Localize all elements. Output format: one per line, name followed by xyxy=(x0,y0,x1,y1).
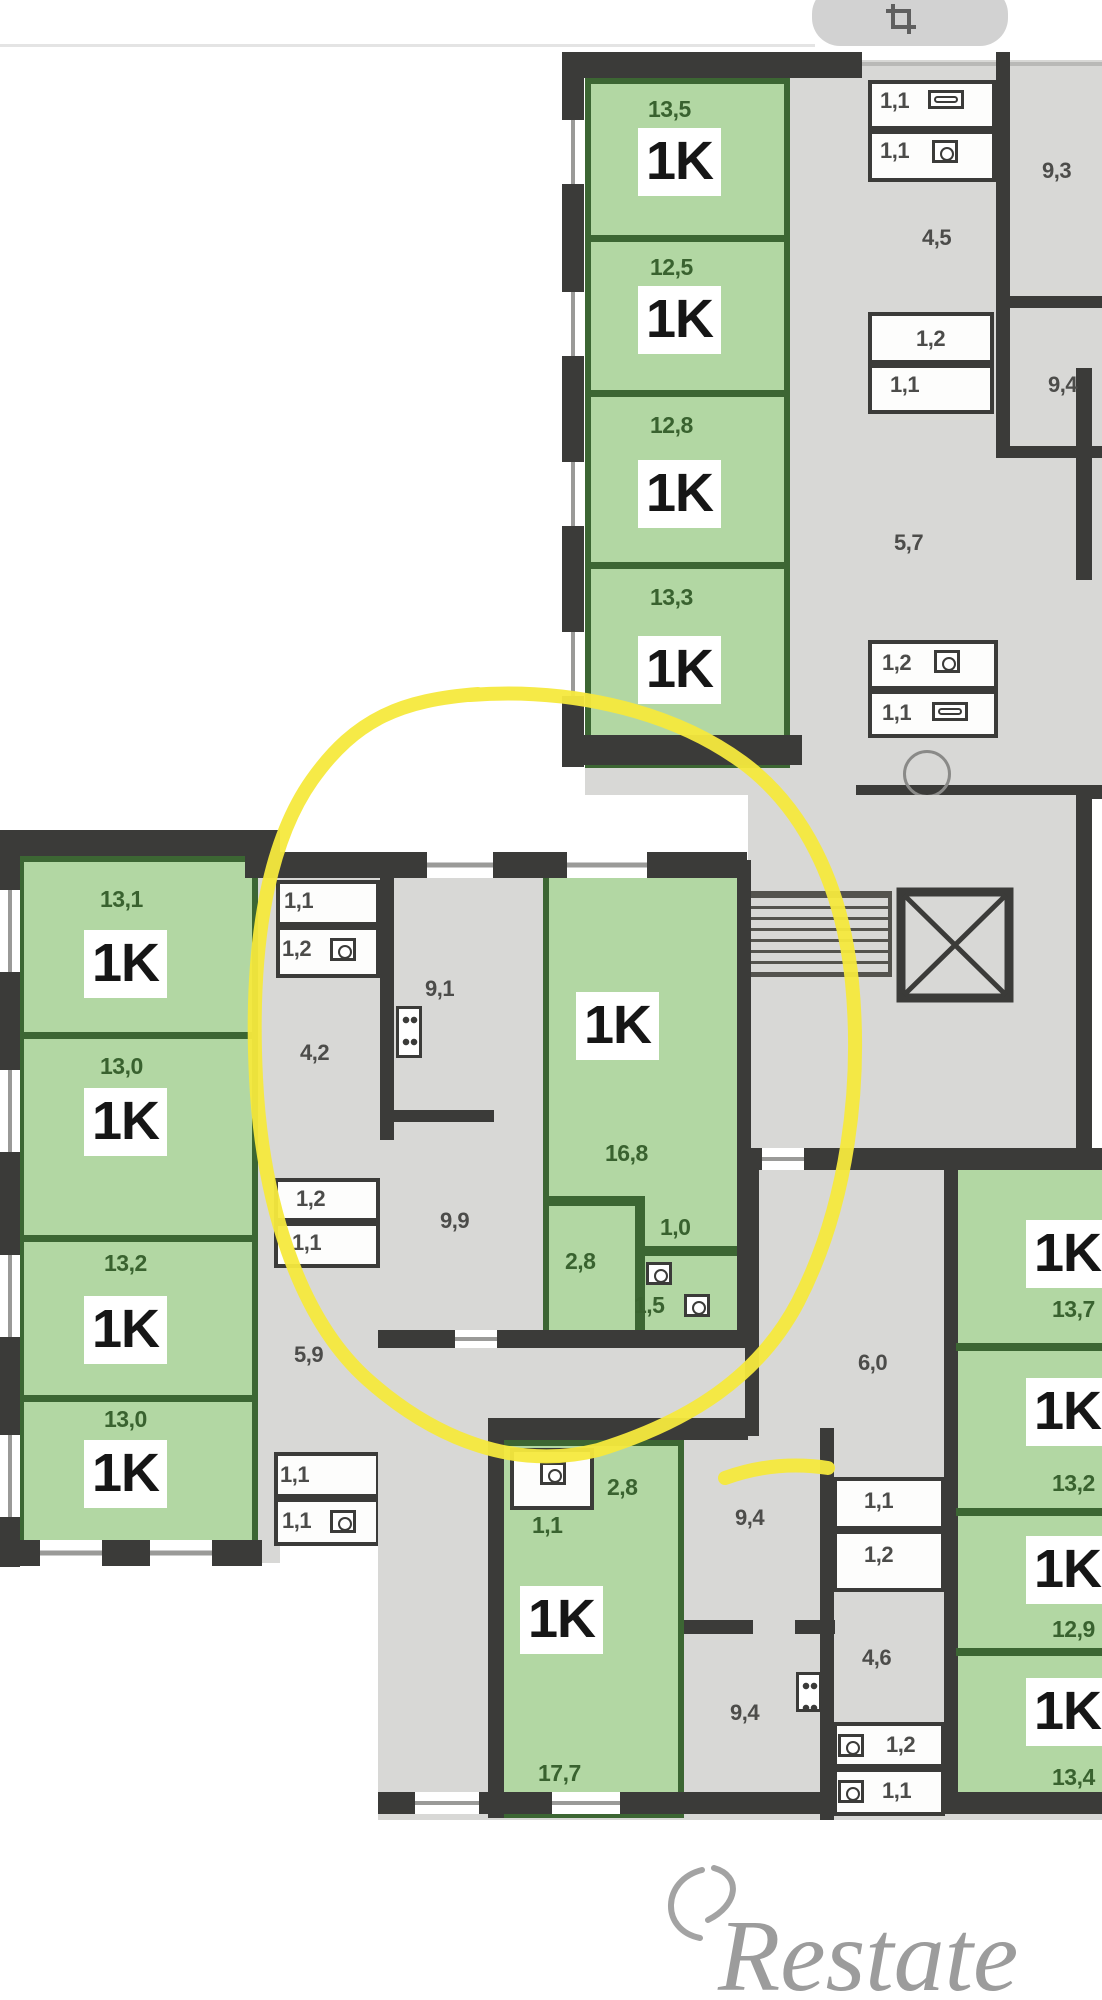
wall xyxy=(21,1032,255,1039)
window xyxy=(0,1255,20,1337)
room-area-label: 9,3 xyxy=(1042,158,1071,184)
apartment-type-badge: 1K xyxy=(520,1586,603,1654)
wall xyxy=(745,1148,759,1436)
washer-icon xyxy=(932,140,958,163)
stove-icon xyxy=(796,1672,822,1712)
wall xyxy=(488,1418,748,1440)
room-area-label: 9,1 xyxy=(425,976,454,1002)
elevator-icon xyxy=(896,887,1016,1007)
apartment-type-badge: 1K xyxy=(638,636,721,704)
room-area-label: 1,1 xyxy=(282,1508,311,1534)
wall xyxy=(0,830,280,856)
wall xyxy=(380,858,394,1140)
wall xyxy=(378,1792,1102,1814)
window xyxy=(567,852,647,878)
watermark-text: Restate xyxy=(717,1900,1018,2000)
bathroom-box xyxy=(274,1222,380,1268)
wall xyxy=(645,1246,741,1256)
washer-icon xyxy=(330,1510,356,1533)
wall xyxy=(378,1330,748,1348)
restate-watermark: Restate xyxy=(600,1850,1102,2000)
apartment-type-badge: 1K xyxy=(84,930,167,998)
apartment-area: 13,1 xyxy=(100,886,143,913)
room-area-label: 9,9 xyxy=(440,1208,469,1234)
apartment-type-badge: 1K xyxy=(1026,1678,1102,1746)
window xyxy=(562,462,584,526)
room-area-label: 2,8 xyxy=(607,1474,637,1501)
apartment-area: 12,8 xyxy=(650,412,693,439)
crop-icon xyxy=(884,2,918,38)
apartment-type-badge: 1K xyxy=(84,1296,167,1364)
wall xyxy=(588,390,787,397)
door-gap xyxy=(455,1330,497,1348)
room-area-label: 1,2 xyxy=(296,1186,325,1212)
room-area-label: 1,0 xyxy=(660,1214,690,1241)
room-area-label: 4,2 xyxy=(300,1040,329,1066)
apartment-area: 16,8 xyxy=(605,1140,648,1167)
wall xyxy=(588,562,787,569)
central-kitchen-corridor xyxy=(388,868,548,1346)
washer-icon xyxy=(540,1462,566,1485)
room-area-label: 2,8 xyxy=(565,1248,595,1275)
wall xyxy=(996,52,1010,310)
window xyxy=(0,1435,20,1517)
wall xyxy=(245,852,747,878)
apartment-area: 12,9 xyxy=(1052,1616,1095,1643)
apartment-type-badge: 1K xyxy=(1026,1378,1102,1446)
window xyxy=(415,1792,479,1814)
wall xyxy=(795,1620,835,1634)
apartment-type-badge: 1K xyxy=(638,460,721,528)
washer-icon xyxy=(838,1734,864,1757)
apartment-area: 13,0 xyxy=(104,1406,147,1433)
window xyxy=(0,1070,20,1152)
apartment-type-badge: 1K xyxy=(638,128,721,196)
room-area-label: 4,5 xyxy=(922,225,951,251)
room-area-label: 1,1 xyxy=(890,372,919,398)
apartment-area: 13,3 xyxy=(650,584,693,611)
apartment-type-badge: 1K xyxy=(84,1440,167,1508)
room-area-label: 1,1 xyxy=(880,88,909,114)
top-divider xyxy=(0,44,815,47)
room-area-label: 5,9 xyxy=(294,1342,323,1368)
wall xyxy=(562,52,862,78)
window xyxy=(562,292,584,356)
wall xyxy=(588,235,787,242)
wall xyxy=(1076,368,1092,580)
room-area-label: 6,0 xyxy=(858,1350,887,1376)
apartment-area: 12,5 xyxy=(650,254,693,281)
door-gap xyxy=(762,1148,804,1170)
washer-icon xyxy=(838,1780,864,1803)
washer-icon xyxy=(330,938,356,961)
apartment-type-badge: 1K xyxy=(84,1088,167,1156)
apartment-area: 13,4 xyxy=(1052,1764,1095,1791)
apartment-type-badge: 1K xyxy=(1026,1220,1102,1288)
apartment-area: 13,2 xyxy=(1052,1470,1095,1497)
column-circle-icon xyxy=(903,750,951,798)
room-area-label: 1,1 xyxy=(864,1488,893,1514)
room-area-label: 9,4 xyxy=(730,1700,759,1726)
stove-icon xyxy=(396,1006,422,1058)
room-area-label: 9,4 xyxy=(1048,372,1077,398)
window xyxy=(150,1540,212,1566)
room-area-label: 9,4 xyxy=(735,1505,764,1531)
wall xyxy=(996,310,1010,458)
room-area-label: 1,1 xyxy=(292,1230,321,1256)
wall xyxy=(488,1418,504,1818)
wall xyxy=(1076,795,1092,1155)
apartment-area: 17,7 xyxy=(538,1760,581,1787)
wall xyxy=(956,1343,1102,1351)
room-area-label: 1,1 xyxy=(532,1512,562,1539)
washer-icon xyxy=(934,650,960,673)
room-area-label: 1,2 xyxy=(916,326,945,352)
washer-icon xyxy=(646,1262,672,1285)
room-area-label: 1,1 xyxy=(882,1778,911,1804)
window xyxy=(552,1792,620,1814)
wall xyxy=(1010,296,1102,308)
apartment-type-badge: 1K xyxy=(638,286,721,354)
room-area-label: 1,2 xyxy=(886,1732,915,1758)
apartment-area: 13,0 xyxy=(100,1053,143,1080)
wall xyxy=(562,735,802,765)
wall xyxy=(956,1648,1102,1656)
window xyxy=(562,120,584,184)
wall xyxy=(21,1395,255,1402)
wall xyxy=(388,1110,494,1122)
floor-plan-screenshot: 13,5 1K 12,5 1K 12,8 1K 13,3 1K 1,1 1,1 … xyxy=(0,0,1102,2000)
bathtub-icon xyxy=(932,702,968,721)
room-area-label: 4,6 xyxy=(862,1645,891,1671)
wall xyxy=(21,1235,255,1242)
window xyxy=(562,632,584,696)
window xyxy=(427,852,493,878)
room-area-label: 5,7 xyxy=(894,530,923,556)
washer-icon xyxy=(684,1294,710,1317)
window xyxy=(0,890,20,972)
wall xyxy=(546,1196,643,1206)
room-area-label: 1,5 xyxy=(634,1292,664,1319)
bathroom-box xyxy=(868,364,994,414)
room-area-label: 1,2 xyxy=(864,1542,893,1568)
apartment-area: 13,7 xyxy=(1052,1296,1095,1323)
apartment-area: 13,5 xyxy=(648,96,691,123)
apartment-type-badge: 1K xyxy=(576,992,659,1060)
room-area-label: 1,1 xyxy=(880,138,909,164)
room-area-label: 1,2 xyxy=(882,650,911,676)
stairs-icon xyxy=(742,891,892,977)
room-area-label: 1,1 xyxy=(280,1462,309,1488)
room-area-label: 1,2 xyxy=(282,936,311,962)
window xyxy=(40,1540,102,1566)
wall xyxy=(944,1148,958,1804)
bathtub-icon xyxy=(928,90,964,109)
wall xyxy=(956,1508,1102,1516)
wall xyxy=(862,62,1102,66)
room-area-label: 1,1 xyxy=(284,888,313,914)
apartment-type-badge: 1K xyxy=(1026,1536,1102,1604)
crop-button[interactable] xyxy=(812,0,1008,46)
room-area-label: 1,1 xyxy=(882,700,911,726)
apartment-area: 13,2 xyxy=(104,1250,147,1277)
bathroom-box xyxy=(274,1178,380,1222)
